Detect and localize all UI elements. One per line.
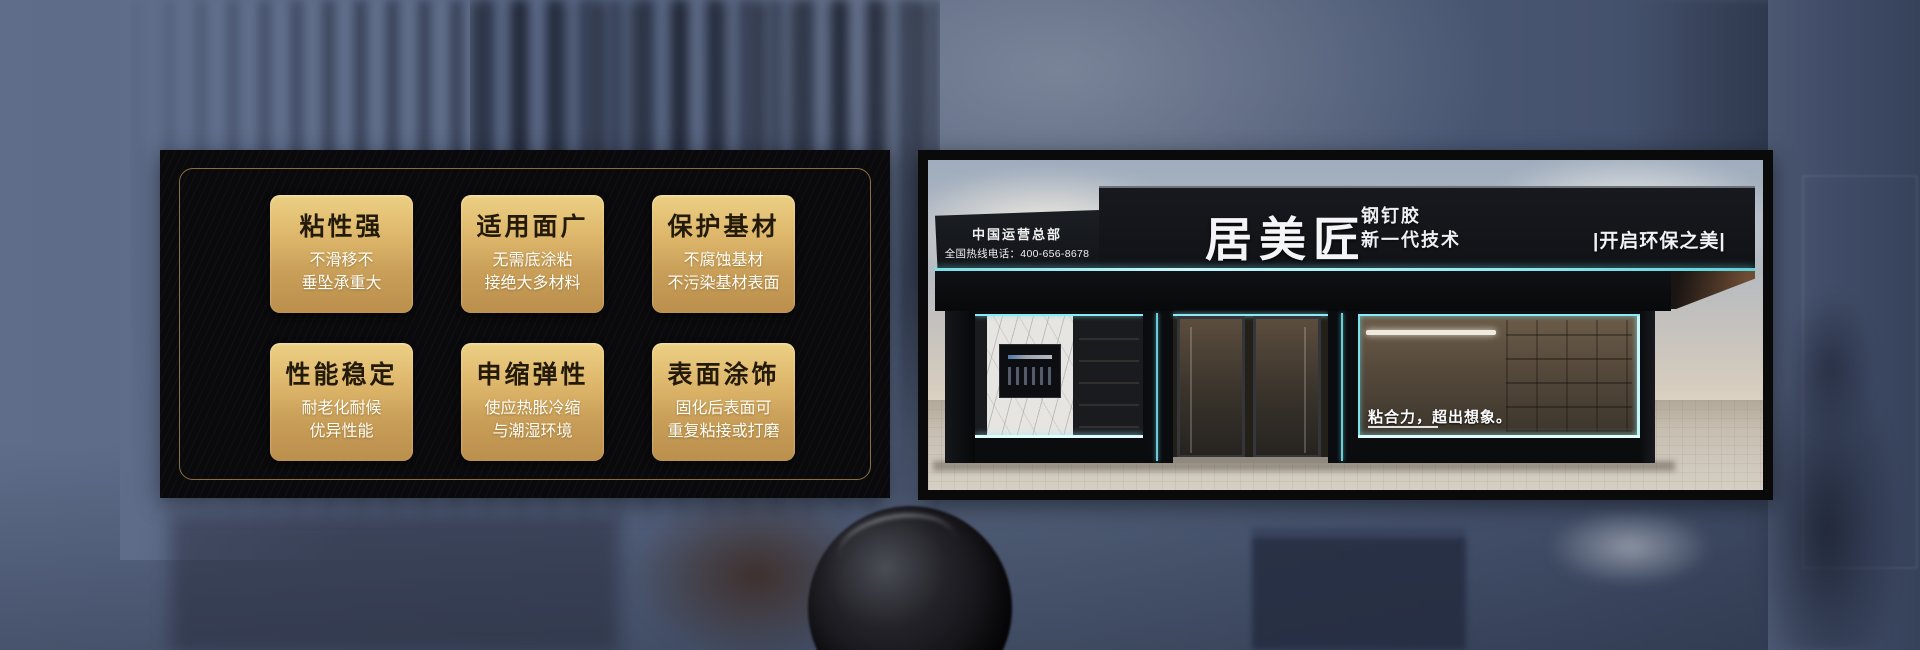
- canopy-soffit: [935, 271, 1671, 311]
- led-strip-bottom: [975, 435, 1143, 438]
- card-subtitle-line: 无需底涂粘: [461, 249, 604, 272]
- card-subtitle-line: 优异性能: [270, 420, 413, 443]
- hotline-label: 全国热线电话：400-656-8678: [935, 246, 1099, 261]
- card-subtitle-line: 垂坠承重大: [270, 272, 413, 295]
- led-strip-top: [1358, 314, 1640, 316]
- store-sign-left: 中国运营总部 全国热线电话：400-656-8678: [935, 210, 1099, 268]
- shelving-silhouette: [1506, 320, 1632, 432]
- display-screen: [999, 344, 1061, 398]
- shop-column-mid-right: [1328, 311, 1358, 463]
- features-panel: 粘性强 不滑移不 垂坠承重大 适用面广 无需底涂粘 接绝大多材料 保护基材 不腐…: [160, 150, 890, 498]
- glass-door-left: [1177, 316, 1245, 458]
- card-title: 申缩弹性: [461, 355, 604, 391]
- display-window-left: [975, 314, 1143, 438]
- led-strip-vertical: [1358, 314, 1360, 438]
- window-slogan: 粘合力，超出想象。: [1368, 406, 1512, 427]
- background-column-shadow: [1630, 0, 1780, 170]
- shop-column-mid-left: [1143, 311, 1173, 463]
- shop-column-right: [1640, 311, 1655, 463]
- led-strip-vertical: [1341, 313, 1343, 461]
- eco-slogan: |开启环保之美|: [1593, 226, 1726, 253]
- card-subtitle-line: 与潮湿环境: [461, 420, 604, 443]
- feature-card-stable: 性能稳定 耐老化耐候 优异性能: [270, 343, 413, 461]
- shop-column-left: [945, 311, 975, 463]
- card-subtitle-line: 不滑移不: [270, 249, 413, 272]
- glass-door-right: [1253, 316, 1321, 458]
- feature-card-elastic: 申缩弹性 使应热胀冷缩 与潮湿环境: [461, 343, 604, 461]
- ceiling-light-bar: [1366, 330, 1496, 335]
- background-vase-silhouette: [1752, 350, 1902, 650]
- card-subtitle-line: 耐老化耐候: [270, 397, 413, 420]
- card-subtitle-line: 不腐蚀基材: [652, 249, 795, 272]
- store-sign-center: 居美匠 钢钉胶 新一代技术 |开启环保之美|: [1099, 186, 1755, 270]
- display-window-right: 粘合力，超出想象。: [1358, 314, 1640, 438]
- glass-reflection: [1190, 327, 1192, 453]
- door-threshold: [1173, 457, 1328, 463]
- product-name: 钢钉胶 新一代技术: [1361, 204, 1461, 252]
- card-subtitle-line: 固化后表面可: [652, 397, 795, 420]
- card-subtitle-line: 不污染基材表面: [652, 272, 795, 295]
- shop-body: 粘合力，超出想象。: [945, 311, 1655, 463]
- glass-reflection: [1304, 327, 1306, 453]
- product-line: 钢钉胶: [1361, 204, 1461, 228]
- window-shelf-silhouette: [1079, 324, 1139, 428]
- led-strip-bottom: [1358, 435, 1640, 438]
- screen-graphic: [1008, 355, 1052, 359]
- product-line: 新一代技术: [1361, 228, 1461, 252]
- card-title: 粘性强: [270, 207, 413, 243]
- ad-banner: 粘性强 不滑移不 垂坠承重大 适用面广 无需底涂粘 接绝大多材料 保护基材 不腐…: [0, 0, 1920, 650]
- glass-doors: [1173, 314, 1328, 460]
- background-cabinet-blur: [170, 515, 620, 650]
- storefront-photo: 中国运营总部 全国热线电话：400-656-8678 居美匠 钢钉胶 新一代技术…: [928, 160, 1763, 490]
- feature-card-finish: 表面涂饰 固化后表面可 重复粘接或打磨: [652, 343, 795, 461]
- feature-card-wide-use: 适用面广 无需底涂粘 接绝大多材料: [461, 195, 604, 313]
- card-title: 适用面广: [461, 207, 604, 243]
- hq-label: 中国运营总部: [935, 210, 1099, 243]
- slogan-underline: [1368, 426, 1438, 428]
- brand-name: 居美匠: [1205, 201, 1367, 270]
- screen-graphic: [1008, 367, 1052, 385]
- card-title: 保护基材: [652, 207, 795, 243]
- background-chair-blur: [1552, 510, 1708, 584]
- card-title: 性能稳定: [270, 355, 413, 391]
- feature-card-protect: 保护基材 不腐蚀基材 不污染基材表面: [652, 195, 795, 313]
- card-subtitle-line: 接绝大多材料: [461, 272, 604, 295]
- card-title: 表面涂饰: [652, 355, 795, 391]
- card-subtitle-line: 重复粘接或打磨: [652, 420, 795, 443]
- led-strip-top: [975, 314, 1143, 316]
- card-subtitle-line: 使应热胀冷缩: [461, 397, 604, 420]
- led-strip-vertical: [1156, 313, 1158, 461]
- background-table-silhouette: [1252, 528, 1466, 650]
- storefront-photo-frame: 中国运营总部 全国热线电话：400-656-8678 居美匠 钢钉胶 新一代技术…: [918, 150, 1773, 500]
- feature-card-adhesion: 粘性强 不滑移不 垂坠承重大: [270, 195, 413, 313]
